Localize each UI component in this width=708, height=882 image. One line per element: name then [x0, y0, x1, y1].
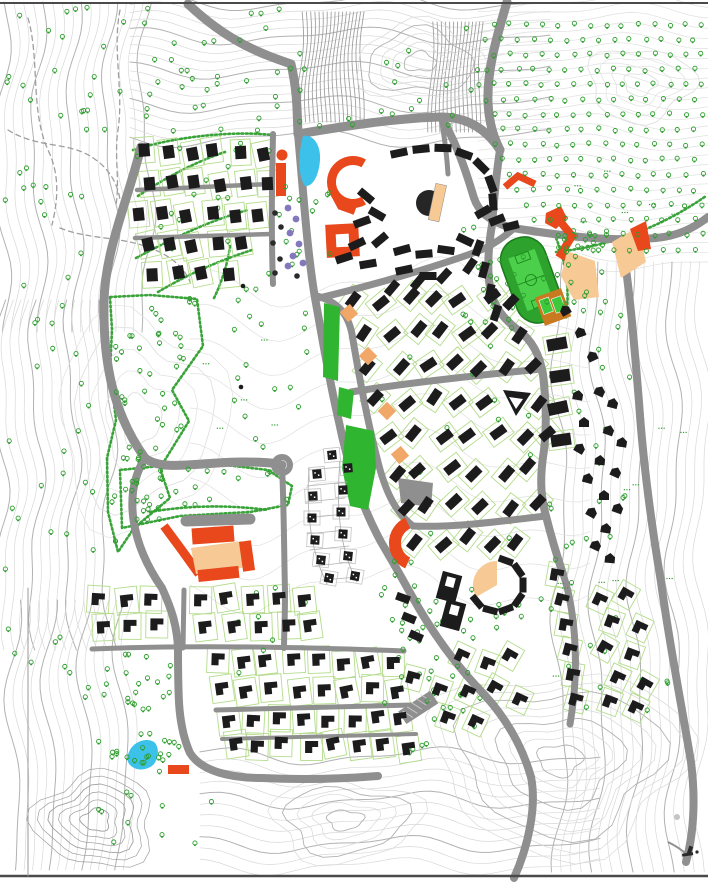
- tree-icon: [290, 70, 292, 72]
- tree-icon: [700, 55, 702, 57]
- tree-icon: [172, 132, 174, 134]
- building: [206, 143, 219, 157]
- tree-icon: [661, 160, 663, 162]
- tree-icon: [629, 252, 631, 254]
- building: [338, 529, 347, 538]
- building: [316, 541, 318, 543]
- building: [275, 737, 288, 749]
- tower-dot: [277, 150, 288, 161]
- tree-icon: [133, 705, 135, 707]
- tree-icon: [628, 70, 630, 72]
- tree-icon: [490, 277, 492, 279]
- tree-icon: [607, 86, 609, 88]
- tree-icon: [694, 220, 696, 222]
- tree-icon: [124, 656, 126, 658]
- tree-icon: [50, 533, 52, 535]
- tree-icon: [238, 674, 240, 676]
- tree-icon: [601, 273, 603, 275]
- tree-icon: [606, 236, 608, 238]
- tree-icon: [606, 232, 608, 234]
- building: [339, 685, 354, 699]
- building: [356, 324, 372, 342]
- tree-icon: [503, 101, 505, 103]
- tree-icon: [92, 551, 94, 553]
- footpath-trails: [116, 10, 120, 205]
- building: [458, 427, 476, 444]
- tree-icon: [245, 366, 247, 368]
- tree-icon: [477, 268, 479, 270]
- tree-icon: [162, 395, 164, 397]
- tree-icon: [499, 261, 501, 263]
- road-nw-lane2: [135, 234, 272, 238]
- building: [585, 349, 598, 362]
- tree-icon: [494, 145, 496, 147]
- tree-icon: [595, 447, 597, 449]
- building: [436, 571, 463, 603]
- courtyard-hole: [336, 234, 350, 248]
- tree-icon: [577, 247, 579, 249]
- tree-icon: [127, 703, 129, 705]
- building: [579, 417, 589, 427]
- tree-icon: [146, 758, 148, 760]
- contour-lines: [1, 300, 19, 650]
- tree-icon: [574, 207, 576, 209]
- tree-icon: [227, 243, 229, 245]
- tree-icon: [449, 709, 451, 711]
- tree-icon: [267, 475, 269, 477]
- building: [156, 206, 169, 220]
- tree-dots: [683, 432, 684, 433]
- tree-dots: [586, 221, 587, 222]
- tree-dots: [577, 185, 578, 186]
- tree-dots: [266, 339, 267, 340]
- tree-icon: [637, 236, 639, 238]
- building: [617, 587, 634, 604]
- tree-icon: [694, 70, 696, 72]
- tree-dots: [277, 424, 278, 425]
- building: [359, 259, 377, 270]
- tree-dots: [629, 489, 630, 490]
- tree-icon: [613, 191, 615, 193]
- tree-icon: [182, 360, 184, 362]
- tree-icon: [571, 544, 573, 546]
- tree-icon: [435, 603, 437, 605]
- tree-icon: [160, 497, 162, 499]
- tree-icon: [239, 41, 241, 43]
- tree-icon: [227, 199, 229, 201]
- tree-icon: [149, 375, 151, 377]
- tree-icon: [516, 41, 518, 43]
- building: [312, 653, 325, 665]
- tree-icon: [168, 743, 170, 745]
- tree-icon: [125, 674, 127, 676]
- tree-dots: [558, 675, 559, 676]
- tree-icon: [668, 176, 670, 178]
- tree-icon: [662, 251, 664, 253]
- tree-icon: [701, 145, 703, 147]
- building: [599, 490, 609, 500]
- tree-icon: [645, 101, 647, 103]
- tree-icon: [510, 144, 512, 146]
- tree-icon: [19, 174, 21, 176]
- tree-icon: [181, 88, 183, 90]
- contour-lines: [600, 59, 686, 116]
- building: [133, 207, 145, 221]
- building: [287, 653, 301, 666]
- tree-icon: [164, 409, 166, 411]
- shrub-dark: [270, 240, 276, 246]
- tree-icon: [622, 235, 624, 237]
- tree-icon: [598, 129, 600, 131]
- building: [321, 716, 334, 728]
- tree-icon: [500, 40, 502, 42]
- tree-icon: [548, 189, 550, 191]
- tree-icon: [315, 203, 317, 205]
- building: [481, 322, 499, 340]
- contour-lines: [326, 810, 365, 831]
- tree-icon: [180, 72, 182, 74]
- tree-icon: [534, 101, 536, 103]
- tree-icon: [522, 297, 524, 299]
- tree-icon: [572, 146, 574, 148]
- tree-icon: [275, 98, 277, 100]
- tree-dots: [609, 171, 610, 172]
- tree-icon: [629, 378, 631, 380]
- tree-icon: [693, 192, 695, 194]
- contour-lines: [31, 600, 49, 870]
- tree-icon: [30, 101, 32, 103]
- tree-icon: [564, 102, 566, 104]
- shrub-dark: [277, 256, 283, 262]
- tree-icon: [662, 192, 664, 194]
- tree-icon: [299, 123, 301, 125]
- tree-icon: [622, 145, 624, 147]
- tree-dots: [626, 489, 627, 490]
- contour-lines: [74, 327, 215, 515]
- tree-icon: [257, 618, 259, 620]
- tree-icon: [654, 25, 656, 27]
- tree-icon: [550, 100, 552, 102]
- tree-icon: [574, 56, 576, 58]
- tree-icon: [159, 344, 161, 346]
- tree-icon: [661, 131, 663, 133]
- building: [432, 321, 449, 339]
- tree-icon: [503, 614, 505, 616]
- tree-icon: [116, 753, 118, 755]
- tree-icon: [180, 347, 182, 349]
- building: [314, 472, 316, 474]
- building: [359, 347, 377, 365]
- building: [213, 178, 226, 193]
- tree-icon: [155, 315, 157, 317]
- tree-icon: [495, 617, 497, 619]
- tree-icon: [61, 307, 63, 309]
- tree-icon: [70, 196, 72, 198]
- tree-icon: [574, 25, 576, 27]
- tree-icon: [176, 431, 178, 433]
- tree-icon: [23, 189, 25, 191]
- tree-icon: [557, 27, 559, 29]
- tree-icon: [543, 280, 545, 282]
- shrub-dark: [278, 224, 284, 230]
- building: [207, 206, 219, 220]
- tree-icon: [661, 221, 663, 223]
- tree-dots: [638, 484, 639, 485]
- tree-icon: [155, 449, 157, 451]
- tree-icon: [217, 78, 219, 80]
- tree-icon: [596, 72, 598, 74]
- tree-icon: [394, 83, 396, 85]
- contour-lines: [84, 2, 102, 332]
- tree-icon: [645, 252, 647, 254]
- tree-icon: [123, 459, 125, 461]
- road-north-link: [298, 117, 500, 150]
- tree-icon: [34, 324, 36, 326]
- tree-icon: [278, 216, 280, 218]
- building: [401, 612, 417, 625]
- tree-icon: [434, 694, 436, 696]
- building: [297, 713, 311, 726]
- tree-icon: [620, 27, 622, 29]
- building: [472, 157, 490, 175]
- tree-icon: [606, 116, 608, 118]
- tree-icon: [176, 368, 178, 370]
- tree-icon: [542, 145, 544, 147]
- tree-icon: [685, 85, 687, 87]
- tree-icon: [203, 44, 205, 46]
- tree-icon: [533, 221, 535, 223]
- tree-icon: [589, 236, 591, 238]
- tree-icon: [391, 115, 393, 117]
- tree-icon: [462, 712, 464, 714]
- tree-icon: [470, 323, 472, 325]
- building: [293, 685, 307, 698]
- building: [326, 737, 341, 751]
- tree-icon: [148, 757, 150, 759]
- building: [258, 654, 272, 667]
- building: [547, 400, 569, 416]
- tree-icon: [598, 351, 600, 353]
- tree-icon: [694, 101, 696, 103]
- tree-icon: [677, 70, 679, 72]
- tree-icon: [580, 160, 582, 162]
- tree-icon: [519, 70, 521, 72]
- building: [312, 538, 314, 540]
- tree-icon: [131, 492, 133, 494]
- tree-icon: [652, 115, 654, 117]
- tree-icon: [139, 372, 141, 374]
- tree-dots: [222, 428, 223, 429]
- tree-icon: [401, 632, 403, 634]
- tree-icon: [628, 40, 630, 42]
- tree-icon: [48, 32, 50, 34]
- tree-icon: [299, 91, 301, 93]
- tree-icon: [501, 160, 503, 162]
- tree-icon: [136, 158, 138, 160]
- tree-icon: [601, 369, 603, 371]
- building: [610, 670, 627, 686]
- tree-icon: [206, 472, 208, 474]
- tree-icon: [121, 353, 123, 355]
- tree-icon: [637, 177, 639, 179]
- tree-icon: [617, 328, 619, 330]
- tree-icon: [430, 535, 432, 537]
- tree-icon: [549, 505, 551, 507]
- contour-lines: [357, 16, 487, 98]
- tree-icon: [513, 276, 515, 278]
- tree-icon: [265, 29, 267, 31]
- tree-icon: [260, 325, 262, 327]
- building: [398, 395, 416, 412]
- tree-icon: [143, 468, 145, 470]
- tree-icon: [175, 335, 177, 337]
- tree-icon: [550, 510, 552, 512]
- contour-lines: [478, 63, 708, 79]
- tree-icon: [144, 24, 146, 26]
- tree-icon: [384, 589, 386, 591]
- tree-icon: [319, 127, 321, 129]
- tree-icon: [52, 350, 54, 352]
- contour-lines: [13, 2, 30, 332]
- building: [298, 594, 312, 607]
- building: [318, 558, 320, 560]
- shrub-dark: [294, 273, 300, 279]
- tree-dots: [674, 214, 675, 215]
- tree-icon: [126, 758, 128, 760]
- corner-mark-3: [695, 850, 698, 853]
- tree-icon: [136, 482, 138, 484]
- tree-icon: [179, 338, 181, 340]
- tree-icon: [622, 54, 624, 56]
- building: [375, 738, 389, 752]
- tree-icon: [558, 249, 560, 251]
- tree-icon: [194, 506, 196, 508]
- tree-icon: [477, 71, 479, 73]
- tree-icon: [131, 483, 133, 485]
- contour-lines: [478, 154, 708, 170]
- tree-icon: [60, 117, 62, 119]
- tree-icon: [588, 115, 590, 117]
- contour-lines: [471, 22, 477, 132]
- building: [520, 578, 527, 593]
- building: [406, 533, 423, 551]
- tree-dots: [272, 424, 273, 425]
- tree-icon: [472, 639, 474, 641]
- tree-icon: [550, 610, 552, 612]
- building: [235, 146, 247, 160]
- tree-dots: [649, 204, 650, 205]
- tree-icon: [404, 606, 406, 608]
- tree-dots: [205, 363, 206, 364]
- tree-icon: [589, 85, 591, 87]
- tree-icon: [303, 329, 305, 331]
- tree-icon: [158, 520, 160, 522]
- school-block-n: [191, 526, 234, 545]
- tree-icon: [497, 421, 499, 423]
- tree-icon: [621, 175, 623, 177]
- tree-icon: [45, 188, 47, 190]
- tree-dots: [613, 580, 614, 581]
- tree-icon: [685, 176, 687, 178]
- tree-icon: [161, 836, 163, 838]
- tree-icon: [685, 147, 687, 149]
- point-mark: [241, 284, 246, 289]
- tree-icon: [654, 54, 656, 56]
- tree-icon: [522, 258, 524, 260]
- tree-icon: [685, 55, 687, 57]
- building: [344, 535, 346, 537]
- tree-icon: [160, 755, 162, 757]
- tree-icon: [26, 169, 28, 171]
- tree-icon: [233, 331, 235, 333]
- tree-icon: [612, 220, 614, 222]
- tree-icon: [306, 353, 308, 355]
- tree-icon: [142, 710, 144, 712]
- tree-icon: [589, 234, 591, 236]
- building: [368, 206, 387, 221]
- tree-icon: [162, 761, 164, 763]
- map-canvas: [0, 0, 708, 882]
- contour-lines: [478, 33, 708, 51]
- tree-icon: [75, 355, 77, 357]
- tree-icon: [202, 107, 204, 109]
- tree-dots: [661, 428, 662, 429]
- tree-icon: [435, 659, 437, 661]
- tree-icon: [63, 452, 65, 454]
- tree-dots: [652, 204, 653, 205]
- shrub-dark: [272, 270, 278, 276]
- building: [480, 656, 496, 672]
- tree-icon: [161, 807, 163, 809]
- tree-icon: [580, 192, 582, 194]
- tree-icon: [186, 72, 188, 74]
- tree-icon: [115, 393, 117, 395]
- tree-icon: [147, 679, 149, 681]
- tree-icon: [278, 10, 280, 12]
- shrub-purple: [285, 205, 292, 212]
- tree-icon: [220, 131, 222, 133]
- tree-dots: [615, 580, 616, 581]
- shrub-purple: [287, 230, 294, 237]
- tree-icon: [465, 29, 467, 31]
- tree-dots: [624, 489, 625, 490]
- tree-icon: [213, 42, 215, 44]
- tree-icon: [660, 40, 662, 42]
- contour-lines: [478, 124, 708, 140]
- tree-icon: [87, 689, 89, 691]
- tree-icon: [511, 329, 513, 331]
- tree-icon: [678, 41, 680, 43]
- contour-lines: [110, 2, 129, 332]
- tree-icon: [556, 56, 558, 58]
- building: [150, 618, 163, 630]
- building: [549, 369, 570, 384]
- tree-icon: [138, 459, 140, 461]
- zigzag-yard: [561, 251, 599, 300]
- tree-icon: [168, 694, 170, 696]
- tree-icon: [223, 473, 225, 475]
- tree-icon: [554, 561, 556, 563]
- tree-icon: [542, 26, 544, 28]
- tree-icon: [393, 563, 395, 565]
- tree-icon: [285, 243, 287, 245]
- tree-icon: [157, 83, 159, 85]
- tree-icon: [36, 367, 38, 369]
- park-kiosk: [168, 765, 189, 774]
- tree-icon: [478, 86, 480, 88]
- tree-icon: [4, 201, 6, 203]
- tree-icon: [6, 83, 8, 85]
